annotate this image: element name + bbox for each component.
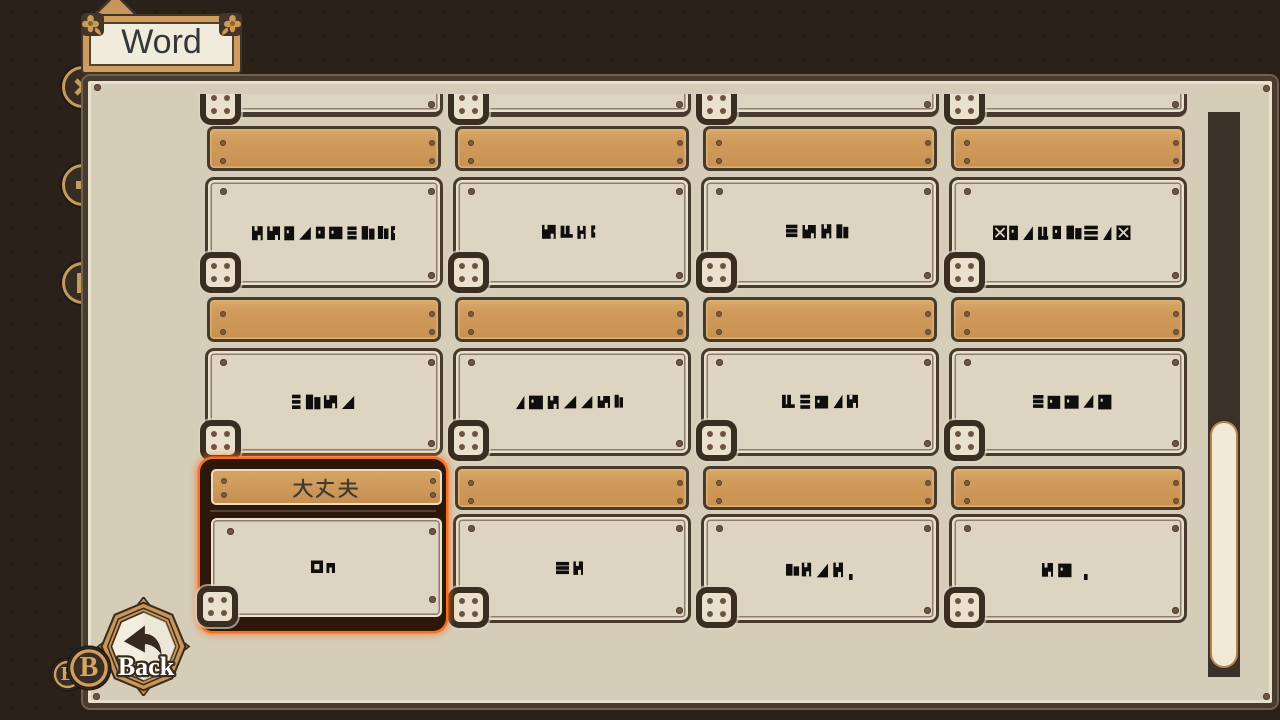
svg-text:Back: Back <box>118 652 175 681</box>
